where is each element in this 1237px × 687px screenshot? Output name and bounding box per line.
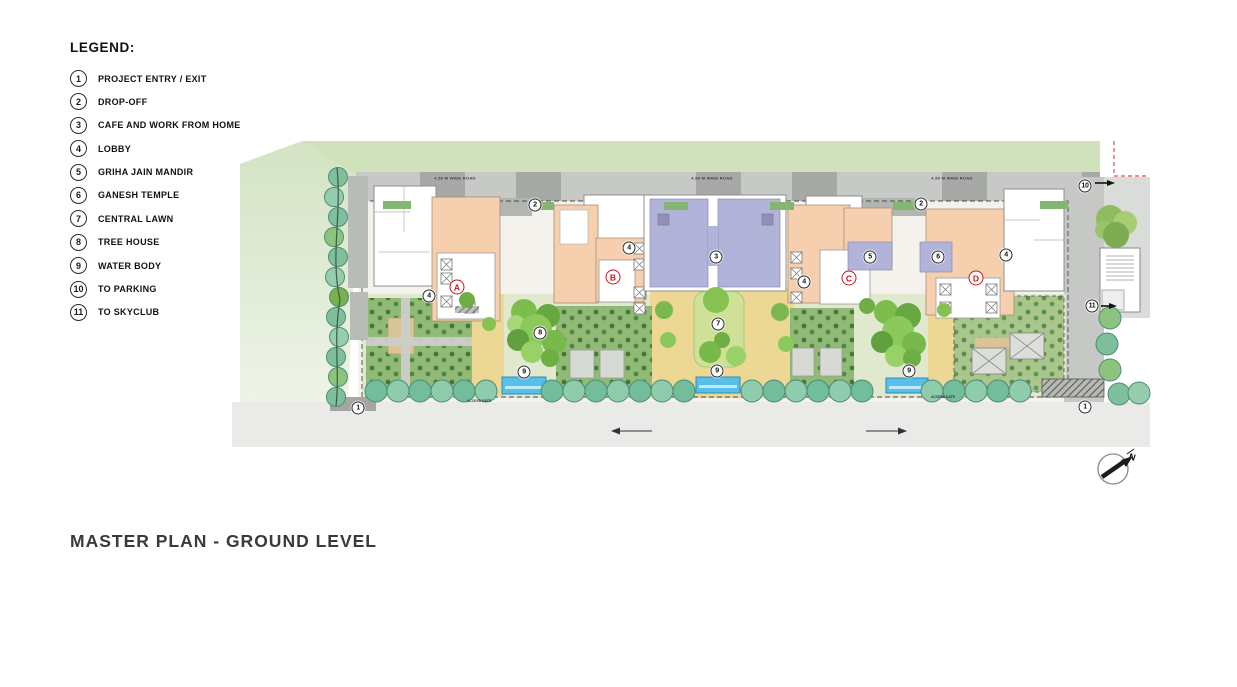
legend-item-label: CAFE AND WORK FROM HOME (98, 120, 241, 130)
legend-item-label: GANESH TEMPLE (98, 190, 179, 200)
legend-panel: LEGEND: 1 PROJECT ENTRY / EXIT 2 DROP-OF… (70, 40, 241, 327)
legend-number-badge: 9 (70, 257, 87, 274)
legend-item: 8 TREE HOUSE (70, 234, 241, 251)
legend-item: 1 PROJECT ENTRY / EXIT (70, 70, 241, 87)
legend-item-label: CENTRAL LAWN (98, 214, 173, 224)
green-backdrop-band (302, 141, 1100, 177)
legend-number-badge: 2 (70, 93, 87, 110)
legend-item: 10 TO PARKING (70, 281, 241, 298)
legend-number-badge: 4 (70, 140, 87, 157)
stair-structure (1100, 248, 1140, 312)
legend-item-label: TO SKYCLUB (98, 307, 159, 317)
legend-number-badge: 1 (70, 70, 87, 87)
north-compass (1098, 449, 1134, 484)
legend-list: 1 PROJECT ENTRY / EXIT 2 DROP-OFF 3 CAFE… (70, 70, 241, 321)
legend-item: 5 GRIHA JAIN MANDIR (70, 164, 241, 181)
legend-item-label: GRIHA JAIN MANDIR (98, 167, 193, 177)
legend-item: 6 GANESH TEMPLE (70, 187, 241, 204)
legend-item-label: WATER BODY (98, 261, 161, 271)
legend-number-badge: 8 (70, 234, 87, 251)
legend-number-badge: 11 (70, 304, 87, 321)
parking-access-road (1064, 177, 1104, 402)
legend-item: 3 CAFE AND WORK FROM HOME (70, 117, 241, 134)
legend-item: 7 CENTRAL LAWN (70, 210, 241, 227)
page-title: MASTER PLAN - GROUND LEVEL (70, 531, 377, 552)
legend-item-label: TREE HOUSE (98, 237, 160, 247)
legend-number-badge: 7 (70, 210, 87, 227)
legend-number-badge: 6 (70, 187, 87, 204)
legend-item-label: LOBBY (98, 144, 131, 154)
legend-heading: LEGEND: (70, 40, 241, 55)
entry-crosswalk (1042, 379, 1104, 397)
tower-b (554, 195, 646, 314)
legend-number-badge: 5 (70, 164, 87, 181)
legend-item-label: DROP-OFF (98, 97, 147, 107)
legend-item: 11 TO SKYCLUB (70, 304, 241, 321)
legend-item: 4 LOBBY (70, 140, 241, 157)
legend-item: 9 WATER BODY (70, 257, 241, 274)
legend-number-badge: 10 (70, 281, 87, 298)
legend-item: 2 DROP-OFF (70, 93, 241, 110)
masterplan-slide: LEGEND: 1 PROJECT ENTRY / EXIT 2 DROP-OF… (0, 0, 1237, 687)
legend-number-badge: 3 (70, 117, 87, 134)
legend-item-label: TO PARKING (98, 284, 157, 294)
legend-item-label: PROJECT ENTRY / EXIT (98, 74, 207, 84)
